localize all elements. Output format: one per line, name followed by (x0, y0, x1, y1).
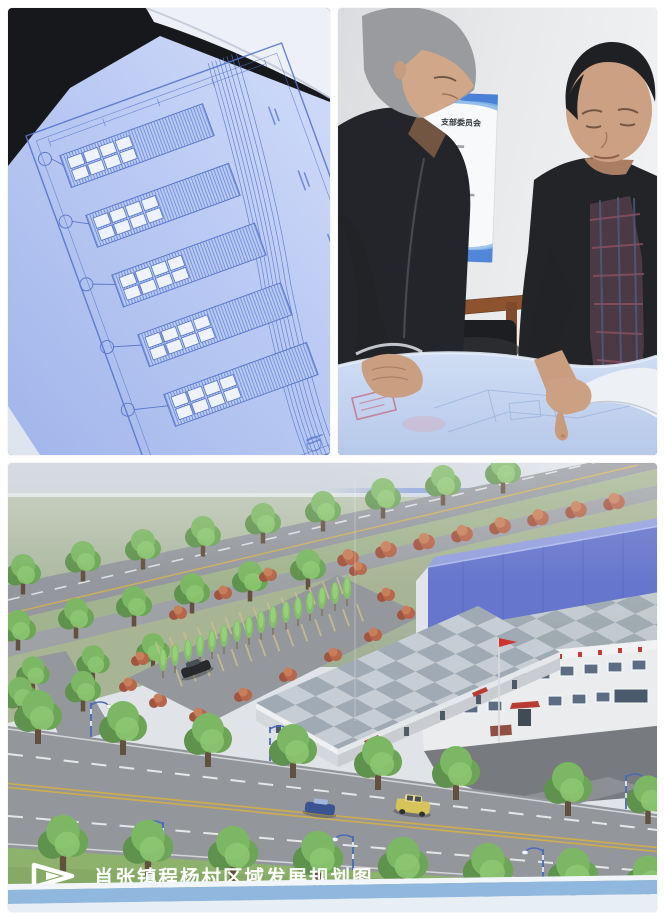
photo-collage: 支部委员会 (0, 0, 665, 920)
blueprint-closeup-photo (8, 8, 330, 455)
officials-reviewing-blueprint-photo: 支部委员会 (338, 8, 657, 455)
village-development-rendering-photo: 肖张镇程杨村区域发展规划图 (8, 463, 657, 912)
photo-haze (338, 8, 657, 455)
photo-haze (8, 8, 330, 455)
